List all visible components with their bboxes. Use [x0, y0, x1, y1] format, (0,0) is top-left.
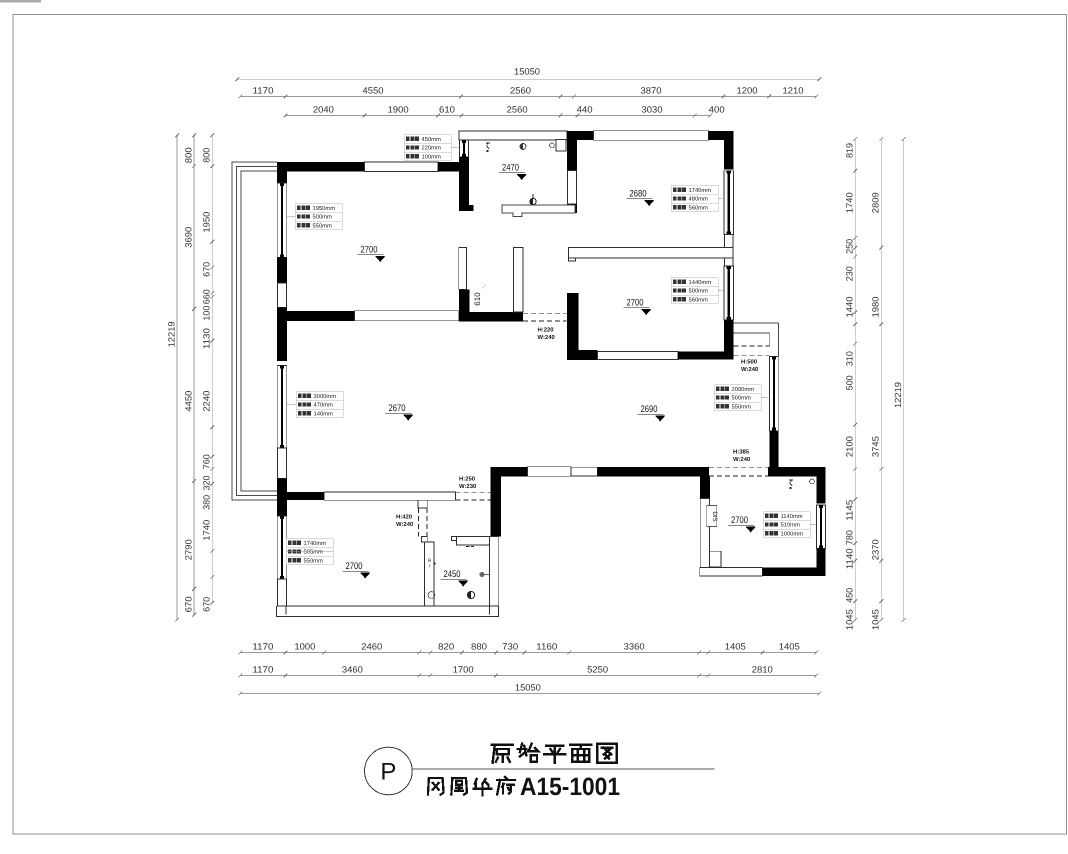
svg-text:3000mm: 3000mm: [314, 393, 337, 400]
svg-text:3030: 3030: [642, 105, 663, 115]
svg-text:2370: 2370: [871, 539, 881, 560]
svg-text:4450: 4450: [183, 391, 193, 412]
svg-text:1740mm: 1740mm: [689, 187, 712, 194]
svg-text:819: 819: [844, 143, 854, 158]
svg-text:550mm: 550mm: [732, 404, 752, 411]
svg-text:1170: 1170: [252, 665, 273, 675]
svg-text:1740: 1740: [844, 192, 854, 213]
svg-text:230: 230: [844, 266, 854, 281]
svg-text:2700: 2700: [627, 298, 644, 309]
svg-text:1950: 1950: [202, 212, 212, 233]
svg-text:220mm: 220mm: [422, 145, 442, 152]
svg-text:4550: 4550: [363, 85, 384, 95]
svg-text:1950mm: 1950mm: [313, 205, 336, 212]
svg-text:480mm: 480mm: [689, 196, 709, 203]
svg-text:1170: 1170: [253, 85, 274, 95]
svg-text:H:385: H:385: [733, 449, 750, 456]
svg-text:2560: 2560: [510, 85, 531, 95]
svg-text:310: 310: [844, 351, 854, 366]
svg-text:800: 800: [202, 148, 212, 163]
svg-text:450: 450: [844, 588, 854, 603]
svg-text:2810: 2810: [752, 665, 773, 675]
svg-text:1140mm: 1140mm: [781, 513, 803, 520]
svg-text:1405: 1405: [779, 642, 800, 652]
svg-text:2560: 2560: [507, 105, 528, 115]
svg-text:A15-1001: A15-1001: [520, 773, 620, 801]
svg-text:500: 500: [844, 375, 854, 390]
svg-text:2040: 2040: [313, 105, 334, 115]
svg-text:1160: 1160: [536, 642, 557, 652]
svg-text:15050: 15050: [514, 67, 540, 77]
svg-text:2700: 2700: [346, 561, 363, 572]
svg-text:1170: 1170: [252, 642, 273, 652]
svg-text:2790: 2790: [183, 539, 193, 560]
svg-text:12219: 12219: [166, 321, 176, 347]
svg-text:1740: 1740: [202, 520, 212, 541]
svg-text:250: 250: [844, 239, 854, 254]
svg-text:100: 100: [202, 306, 212, 321]
svg-text:W:240: W:240: [733, 456, 751, 463]
svg-text:H:500: H:500: [741, 359, 758, 366]
svg-text:3360: 3360: [624, 642, 645, 652]
svg-text:440: 440: [577, 105, 593, 115]
svg-text:1740mm: 1740mm: [304, 540, 327, 547]
svg-text:320: 320: [202, 476, 212, 491]
svg-text:1045: 1045: [871, 609, 881, 630]
svg-text:780: 780: [844, 530, 854, 545]
svg-text:DIS: DIS: [711, 511, 718, 521]
svg-text:1000: 1000: [294, 642, 315, 652]
svg-text:H:220: H:220: [538, 327, 555, 334]
svg-text:3460: 3460: [342, 665, 363, 675]
svg-text:2670: 2670: [389, 403, 406, 414]
svg-text:670: 670: [202, 597, 212, 612]
svg-text:12219: 12219: [893, 382, 903, 408]
svg-text:1440: 1440: [844, 297, 854, 318]
svg-text:5250: 5250: [587, 665, 608, 675]
svg-text:W:240: W:240: [538, 334, 556, 341]
svg-text:W:240: W:240: [396, 521, 414, 528]
svg-text:H:420: H:420: [396, 514, 413, 521]
svg-text:J: J: [429, 563, 431, 568]
svg-text:2690: 2690: [641, 404, 658, 415]
svg-text:610: 610: [439, 105, 455, 115]
svg-text:2680: 2680: [630, 189, 647, 200]
svg-text:2460: 2460: [361, 642, 382, 652]
svg-text:3690: 3690: [183, 227, 193, 248]
svg-text:W:230: W:230: [459, 483, 477, 490]
svg-text:2470: 2470: [502, 163, 519, 174]
svg-text:1140: 1140: [844, 548, 854, 569]
svg-text:660: 660: [202, 289, 212, 304]
svg-text:400: 400: [709, 105, 725, 115]
svg-text:2100: 2100: [844, 436, 854, 457]
svg-text:1700: 1700: [453, 665, 474, 675]
svg-text:670: 670: [202, 262, 212, 277]
svg-text:1045: 1045: [844, 609, 854, 630]
svg-text:W:240: W:240: [741, 366, 759, 373]
svg-text:140mm: 140mm: [314, 411, 334, 418]
svg-text:3745: 3745: [871, 436, 881, 457]
svg-text:500mm: 500mm: [689, 288, 709, 295]
svg-text:820: 820: [438, 642, 454, 652]
svg-text:560mm: 560mm: [689, 297, 709, 304]
svg-text:H:250: H:250: [459, 476, 476, 483]
svg-text:1200: 1200: [737, 85, 758, 95]
svg-text:880: 880: [471, 642, 487, 652]
svg-text:550mm: 550mm: [313, 223, 333, 230]
svg-text:2809: 2809: [871, 192, 881, 213]
svg-text:1130: 1130: [202, 328, 212, 349]
svg-text:800: 800: [183, 147, 193, 163]
svg-text:610: 610: [473, 292, 482, 306]
svg-text:760: 760: [202, 454, 212, 469]
svg-text:500mm: 500mm: [313, 214, 333, 221]
svg-text:510mm: 510mm: [781, 522, 801, 529]
svg-text:670: 670: [183, 596, 193, 612]
svg-text:500mm: 500mm: [732, 395, 752, 402]
svg-text:2240: 2240: [202, 391, 212, 412]
svg-text:550mm: 550mm: [304, 558, 324, 565]
svg-text:15050: 15050: [515, 683, 541, 693]
svg-text:560mm: 560mm: [689, 205, 709, 212]
svg-text:380: 380: [202, 495, 212, 510]
svg-text:2000mm: 2000mm: [732, 386, 755, 393]
svg-text:1900: 1900: [388, 105, 409, 115]
svg-text:2700: 2700: [361, 245, 378, 256]
svg-text:1145: 1145: [844, 500, 854, 521]
svg-text:100mm: 100mm: [422, 154, 442, 161]
svg-text:505mm: 505mm: [304, 549, 324, 556]
svg-text:2450: 2450: [444, 569, 461, 580]
svg-text:730: 730: [502, 642, 518, 652]
svg-text:P: P: [380, 759, 396, 786]
svg-text:1440mm: 1440mm: [689, 279, 712, 286]
svg-text:2700: 2700: [731, 515, 748, 526]
svg-text:450mm: 450mm: [422, 136, 442, 143]
svg-text:1405: 1405: [725, 642, 746, 652]
svg-text:1210: 1210: [783, 85, 804, 95]
svg-text:1980: 1980: [871, 297, 881, 318]
svg-text:3870: 3870: [641, 85, 662, 95]
svg-text:1000mm: 1000mm: [781, 531, 804, 538]
svg-text:470mm: 470mm: [314, 402, 334, 409]
